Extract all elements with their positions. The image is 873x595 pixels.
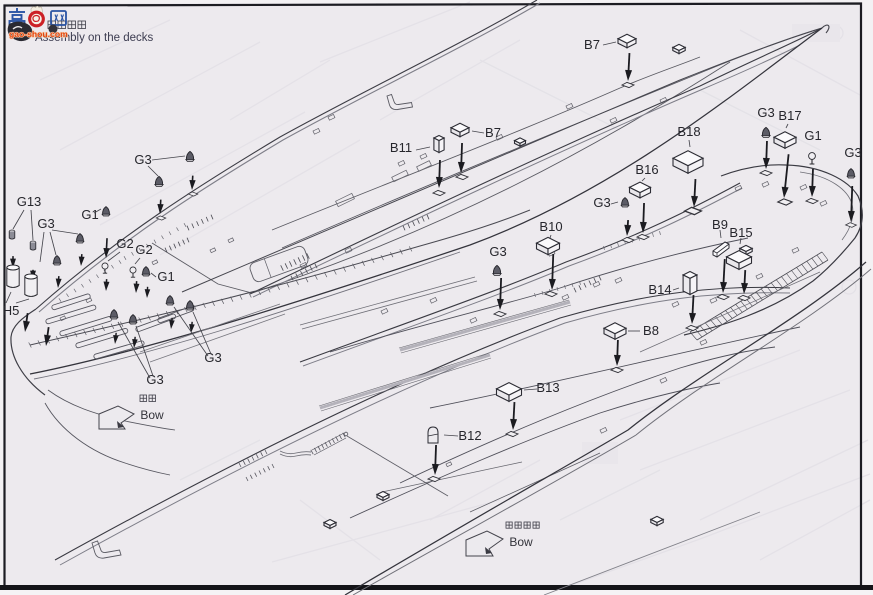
svg-text:B12: B12 (458, 428, 481, 443)
svg-text:G3: G3 (489, 244, 506, 259)
svg-text:G13: G13 (17, 194, 42, 209)
svg-text:G3: G3 (593, 195, 610, 210)
svg-text:G1: G1 (81, 207, 98, 222)
svg-text:G3: G3 (757, 105, 774, 120)
svg-text:B16: B16 (635, 162, 658, 177)
svg-text:B10: B10 (539, 219, 562, 234)
svg-text:G2: G2 (135, 242, 152, 257)
svg-text:gao-shou.com: gao-shou.com (9, 29, 68, 39)
svg-text:B7: B7 (485, 125, 501, 140)
svg-text:B17: B17 (778, 108, 801, 123)
svg-text:G1: G1 (804, 128, 821, 143)
svg-text:H5: H5 (3, 303, 20, 318)
svg-text:G2: G2 (116, 236, 133, 251)
svg-text:G3: G3 (37, 216, 54, 231)
svg-text:B8: B8 (643, 323, 659, 338)
svg-text:Bow: Bow (509, 535, 533, 549)
svg-text:B18: B18 (677, 124, 700, 139)
svg-text:B14: B14 (648, 282, 671, 297)
svg-text:B13: B13 (536, 380, 559, 395)
svg-text:G3: G3 (844, 145, 861, 160)
svg-text:G1: G1 (157, 269, 174, 284)
svg-text:B15: B15 (729, 225, 752, 240)
svg-text:G3: G3 (134, 152, 151, 167)
svg-text:G3: G3 (146, 372, 163, 387)
svg-text:B9: B9 (712, 217, 728, 232)
svg-text:G3: G3 (204, 350, 221, 365)
svg-text:B11: B11 (390, 140, 412, 155)
svg-text:Bow: Bow (140, 408, 164, 422)
svg-text:B7: B7 (584, 37, 600, 52)
